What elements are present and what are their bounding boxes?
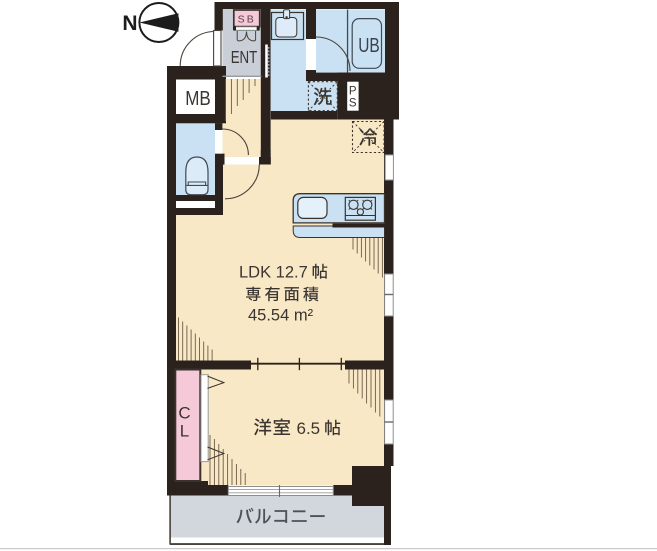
svg-text:C: C (178, 404, 190, 423)
svg-text:MB: MB (185, 88, 211, 110)
svg-text:N: N (122, 12, 137, 35)
svg-text:ENT: ENT (231, 47, 258, 67)
svg-text:SB: SB (238, 13, 256, 25)
svg-text:UB: UB (358, 35, 380, 57)
svg-text:6.5: 6.5 (297, 419, 321, 438)
svg-text:S: S (349, 97, 357, 109)
svg-text:LDK 12.7: LDK 12.7 (239, 264, 308, 282)
svg-text:L: L (180, 422, 189, 441)
svg-text:45.54 m²: 45.54 m² (248, 307, 314, 325)
svg-text:P: P (349, 86, 357, 98)
